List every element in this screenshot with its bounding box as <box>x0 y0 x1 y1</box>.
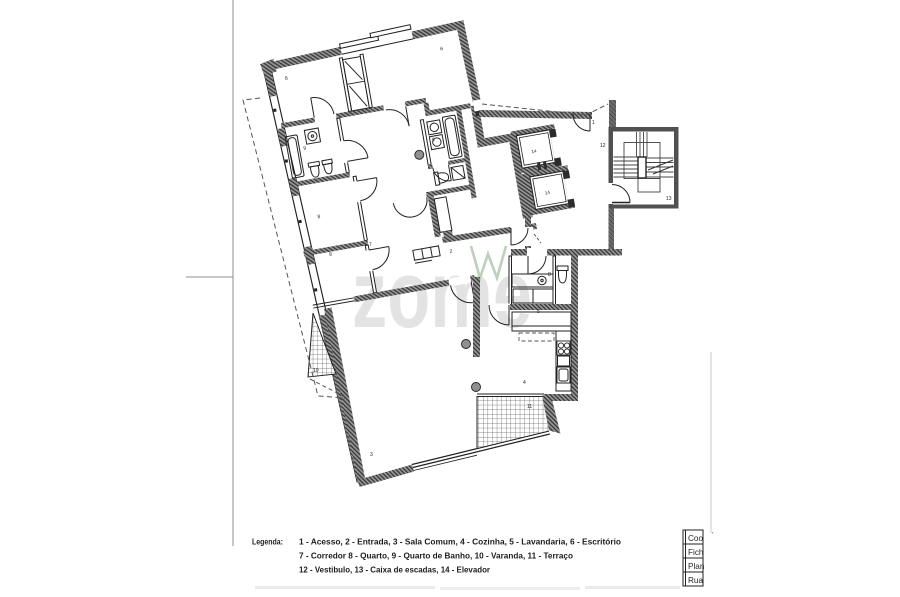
svg-text:’: ’ <box>712 532 714 539</box>
svg-text:1 - Acesso, 2 - Entrada, 3 -: 1 - Acesso, 2 - Entrada, 3 - Sala Comum,… <box>299 538 621 547</box>
svg-text:8: 8 <box>317 214 321 220</box>
svg-text:Fich: Fich <box>688 548 704 557</box>
svg-text:8: 8 <box>329 251 333 257</box>
svg-text:12: 12 <box>600 143 606 149</box>
svg-text:Legenda:: Legenda: <box>252 538 283 547</box>
svg-text:1: 1 <box>592 120 595 126</box>
svg-text:11: 11 <box>527 404 532 410</box>
svg-text:7 - Corredor 8 - Quarto, 9 -: 7 - Corredor 8 - Quarto, 9 - Quarto de B… <box>299 552 573 561</box>
svg-text:8: 8 <box>548 272 551 278</box>
svg-text:13: 13 <box>666 196 672 202</box>
svg-text:6: 6 <box>440 46 444 52</box>
svg-text:Rua: Rua <box>688 576 703 585</box>
svg-text:10: 10 <box>313 368 319 374</box>
svg-text:5: 5 <box>537 309 540 315</box>
svg-text:3: 3 <box>370 452 373 458</box>
svg-text:9: 9 <box>303 145 307 151</box>
svg-text:12 - Vestibulo, 13 - Caixa de: 12 - Vestibulo, 13 - Caixa de escadas, 1… <box>299 566 490 575</box>
svg-text:8: 8 <box>285 75 289 81</box>
svg-text:4: 4 <box>523 380 526 386</box>
svg-text:Coo: Coo <box>688 534 703 543</box>
svg-text:Plan: Plan <box>688 562 705 571</box>
